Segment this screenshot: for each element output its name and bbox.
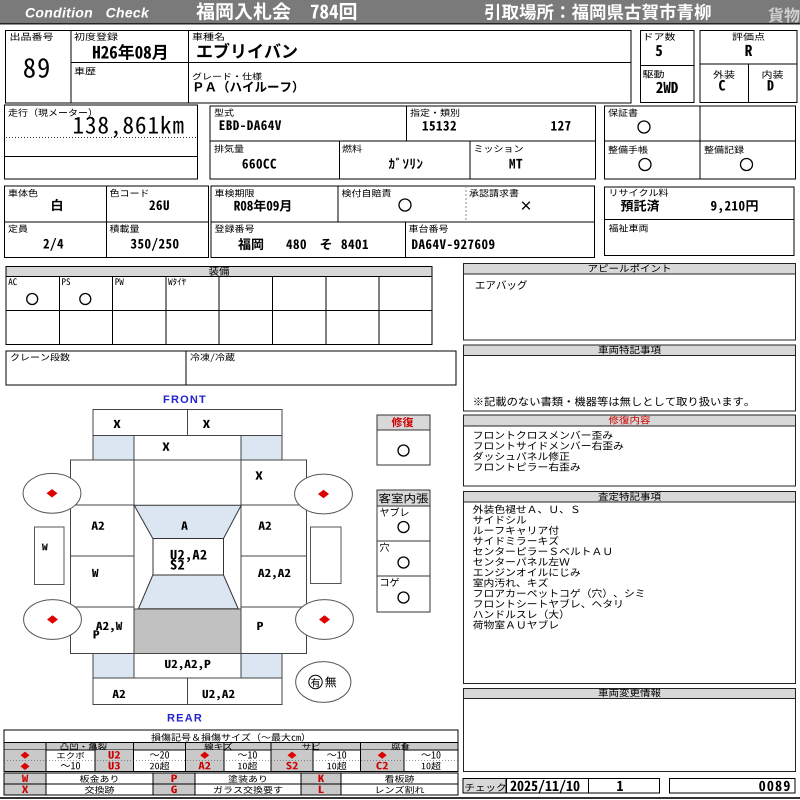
svg-text:FRONT: FRONT bbox=[163, 394, 207, 406]
svg-text:REAR: REAR bbox=[167, 713, 203, 725]
svg-text:Condition Check: Condition Check bbox=[25, 5, 150, 21]
